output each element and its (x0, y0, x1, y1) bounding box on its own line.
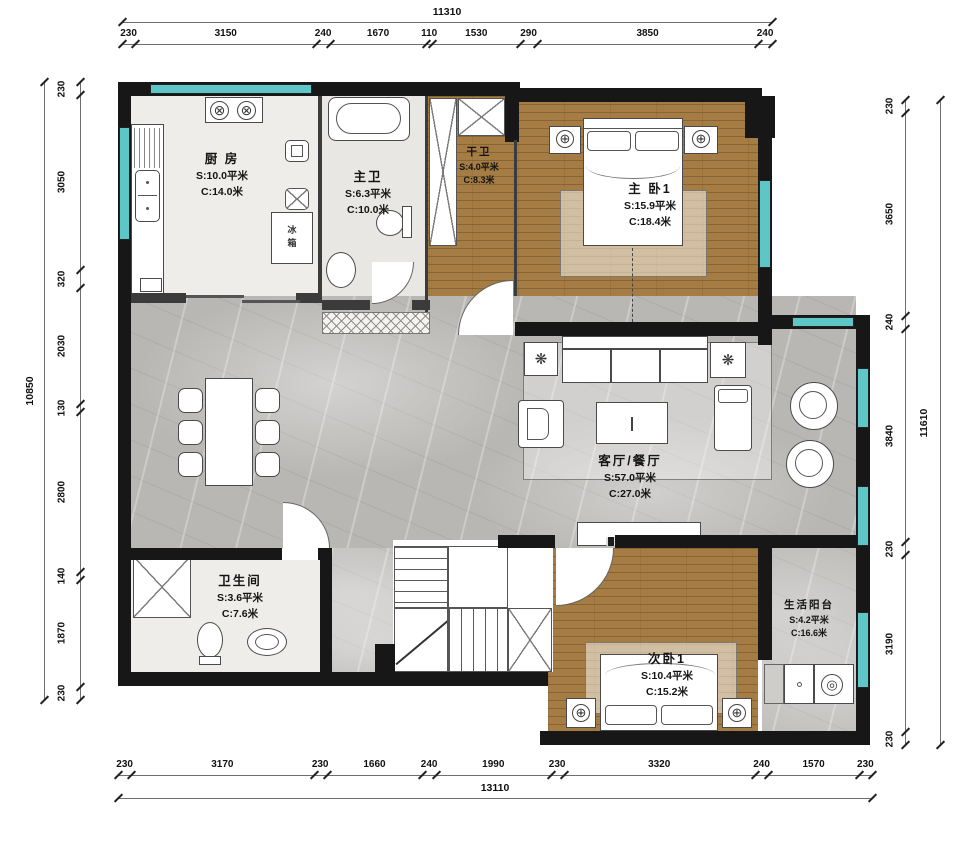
room-area: S:10.0平米 (172, 169, 272, 185)
room-perimeter: C:14.0米 (172, 185, 272, 201)
living-right-window-2 (857, 486, 869, 546)
dim-segment-label: 3190 (885, 632, 896, 654)
room-label-master-bath: 主卫 S:6.3平米 C:10.0米 (328, 168, 408, 218)
leisure-chair-seat (795, 449, 823, 477)
dim-segment-label: 3320 (648, 759, 670, 770)
dim-segment-label: 1660 (363, 759, 385, 770)
bathroom-right-wall (320, 548, 332, 672)
stairs-diagonal (394, 608, 448, 672)
dim-segment-label: 240 (421, 759, 438, 770)
dim-segment-label: 320 (57, 271, 68, 288)
room-perimeter: C:16.6米 (766, 627, 852, 641)
lamp-icon: ⊕ (572, 704, 590, 722)
dim-segment-label: 230 (57, 80, 68, 97)
dim-segment-label: 3050 (57, 171, 68, 193)
chaise-pillow (718, 389, 748, 403)
kitchen-sliding-door-2 (242, 300, 300, 303)
dim-tick (868, 793, 877, 802)
leisure-chair-2 (786, 440, 834, 488)
dim-segment-label: 1670 (367, 28, 389, 39)
kitchen-left-window (119, 127, 130, 240)
room-perimeter: C:8.3米 (448, 174, 510, 188)
dining-chair (178, 420, 203, 445)
dim-segment-label: 230 (549, 759, 566, 770)
dining-table (205, 378, 253, 486)
sofa-back (562, 336, 708, 349)
lamp-icon: ⊕ (728, 704, 746, 722)
masterbath-bottom-wall-a (322, 300, 370, 310)
kitchen-top-window (150, 84, 312, 94)
dining-chair (255, 452, 280, 477)
stairs-flight-lower (448, 608, 508, 672)
floor-plan: ⊗ ⊗ 冰箱 ⊕ ⊕ ❋ ❋ (0, 0, 979, 851)
bottom-wall-stairs (375, 672, 548, 686)
fridge-label: 冰箱 (286, 225, 299, 251)
master-bedroom-bottom-wall (515, 322, 772, 336)
bottom-wall-left (118, 672, 380, 686)
room-perimeter: C:18.4米 (595, 215, 705, 231)
dim-segment-label: 1570 (802, 759, 824, 770)
dim-segment-label: 230 (885, 98, 896, 115)
dining-chair (178, 388, 203, 413)
master-bedroom-window (759, 180, 771, 268)
room-perimeter: C:10.0米 (328, 203, 408, 219)
dim-segment-label: 240 (315, 28, 332, 39)
dim-segment-label: 230 (116, 759, 133, 770)
dim-segment-label: 230 (885, 730, 896, 747)
room-label-second-bedroom: 次卧1 S:10.4平米 C:15.2米 (612, 650, 722, 700)
dim-segment-label: 240 (753, 759, 770, 770)
entry-hatch-floor (322, 312, 430, 334)
dim-segment-label: 240 (885, 314, 896, 331)
leisure-chair-1 (790, 382, 838, 430)
plant-icon: ❋ (722, 351, 735, 369)
coffee-table (596, 402, 668, 444)
dim-total-line (122, 22, 772, 23)
room-label-kitchen: 厨 房 S:10.0平米 C:14.0米 (172, 150, 272, 200)
dim-segment-label: 2030 (57, 335, 68, 357)
dim-segment-label: 110 (421, 28, 437, 39)
kitchen-sliding-door (186, 295, 244, 298)
room-name: 次卧1 (612, 650, 722, 669)
room-area: S:15.9平米 (595, 199, 705, 215)
dim-segment-label: 3170 (211, 759, 233, 770)
room-name: 客厅/餐厅 (560, 452, 700, 471)
room-area: S:4.0平米 (448, 161, 510, 175)
toilet-bathroom (197, 622, 223, 658)
room-area: S:3.6平米 (190, 591, 290, 607)
dim-tick (936, 740, 945, 749)
room-area: S:4.2平米 (766, 614, 852, 628)
dim-segment-label: 2800 (57, 481, 68, 503)
living-bedroom2-wall-a (498, 535, 555, 548)
leisure-chair-seat (799, 391, 827, 419)
living-right-window-1 (857, 368, 869, 428)
room-area: S:6.3平米 (328, 187, 408, 203)
room-name: 干卫 (448, 145, 510, 161)
dim-segment-line (80, 82, 81, 700)
kitchen-appliance-1 (285, 140, 309, 162)
drainboard (134, 128, 161, 168)
balcony-right-window (857, 612, 869, 688)
pillow (635, 131, 679, 151)
kitchen-appliance-2 (285, 188, 309, 210)
dim-total-label: 11610 (918, 408, 930, 437)
stairs-direction-line (395, 615, 448, 665)
room-name: 主卫 (328, 168, 408, 187)
masterbath-bottom-wall-b (412, 300, 430, 310)
gas-stove: ⊗ ⊗ (205, 97, 263, 123)
dim-total-label: 10850 (24, 376, 36, 405)
dim-segment-label: 290 (520, 28, 537, 39)
dim-segment-line (118, 775, 872, 776)
bed-centerline (632, 248, 633, 322)
bathtub (328, 97, 410, 141)
dim-segment-label: 1530 (465, 28, 487, 39)
side-table-right: ❋ (710, 342, 746, 378)
kitchen-sink (135, 170, 160, 222)
dim-tick (40, 695, 49, 704)
sink-drain-dot (146, 181, 149, 184)
room-label-bathroom: 卫生间 S:3.6平米 C:7.6米 (190, 572, 290, 622)
sofa-seat-2 (611, 349, 660, 383)
dim-segment-label: 140 (57, 567, 68, 584)
plant-icon: ❋ (535, 350, 548, 368)
appliance-inner (291, 145, 303, 157)
armchair (518, 400, 564, 448)
dim-tick (768, 17, 777, 26)
dim-segment-label: 3850 (636, 28, 658, 39)
dim-segment-label: 230 (57, 685, 68, 702)
room-name: 厨 房 (172, 150, 272, 169)
dim-total-label: 11310 (433, 6, 462, 18)
stairs-landing (448, 546, 508, 608)
dim-total-line (44, 82, 45, 700)
dim-segment-label: 3150 (215, 28, 237, 39)
dim-total-label: 13110 (481, 782, 510, 794)
room-label-dry-bath: 干卫 S:4.0平米 C:8.3米 (448, 145, 510, 188)
coffee-table-mark (631, 417, 633, 431)
washing-machine: ◎ (814, 664, 854, 704)
headboard (584, 119, 682, 129)
lamp-icon: ⊕ (556, 130, 574, 148)
burner-icon: ⊗ (237, 101, 256, 120)
dim-segment-label: 230 (312, 759, 329, 770)
room-label-master-bedroom: 主 卧1 S:15.9平米 C:18.4米 (595, 180, 705, 230)
kitchen-bottom-wall-a (131, 293, 186, 303)
drybath-bedroom-wall-top (505, 96, 519, 142)
top-wall-bedroom (508, 88, 762, 102)
burner-icon: ⊗ (210, 101, 229, 120)
dim-segment-label: 1870 (57, 622, 68, 644)
dim-segment-label: 3650 (885, 203, 896, 225)
lamp-icon: ⊕ (692, 130, 710, 148)
living-bedroom2-wall-b (615, 535, 870, 548)
dim-segment-label: 230 (120, 28, 137, 39)
bathtub-inner (336, 103, 401, 134)
kitchen-masterbath-wall (318, 96, 322, 296)
toilet-bathroom-tank (199, 656, 221, 665)
sofa-seat-3 (660, 349, 708, 383)
dim-segment-label: 1990 (482, 759, 504, 770)
dim-total-line (118, 798, 872, 799)
shaft-box (508, 608, 552, 672)
dim-total-line (940, 100, 941, 745)
balcony-sink (784, 664, 814, 704)
room-perimeter: C:7.6米 (190, 607, 290, 623)
dim-segment-line (905, 100, 906, 745)
dim-tick (76, 695, 85, 704)
sink-bathroom (247, 628, 287, 656)
sofa-seat-1 (562, 349, 611, 383)
dining-chair (255, 388, 280, 413)
fridge: 冰箱 (271, 212, 313, 264)
armchair-cushion (527, 408, 549, 440)
sink-inner (255, 634, 279, 650)
dim-segment-label: 3840 (885, 424, 896, 446)
dim-tick (901, 740, 910, 749)
room-name: 主 卧1 (595, 180, 705, 199)
sink-divider (138, 195, 157, 196)
balcony-counter (764, 664, 784, 704)
dim-segment-label: 230 (857, 759, 874, 770)
dim-segment-label: 130 (57, 400, 68, 417)
washer-door-icon: ◎ (821, 674, 843, 696)
dining-chair (178, 452, 203, 477)
stair-step-wall (375, 644, 395, 686)
drybath-bedroom-wall (514, 140, 517, 296)
pillow (587, 131, 631, 151)
drain-dot (797, 682, 802, 687)
sink-drain-dot (146, 207, 149, 210)
bottom-wall-right (540, 731, 870, 745)
dim-segment-label: 240 (757, 28, 774, 39)
sink-master (326, 252, 356, 288)
room-perimeter: C:27.0米 (560, 487, 700, 503)
room-area: S:10.4平米 (612, 669, 722, 685)
chaise (714, 385, 752, 451)
room-name: 生活阳台 (766, 598, 852, 614)
room-area: S:57.0平米 (560, 471, 700, 487)
side-table-left: ❋ (524, 342, 558, 376)
bathroom-top-wall-a (118, 548, 282, 560)
pillow (661, 705, 713, 725)
pillow (605, 705, 657, 725)
dim-segment-label: 230 (885, 540, 896, 557)
room-perimeter: C:15.2米 (612, 685, 722, 701)
stairs-flight-upper (394, 546, 448, 608)
shower-box (133, 556, 191, 618)
dim-segment-line (122, 44, 772, 45)
closet-cabinet-top (458, 98, 505, 136)
blanket-arc (586, 153, 680, 179)
dim-tick (768, 39, 777, 48)
room-label-balcony: 生活阳台 S:4.2平米 C:16.6米 (766, 598, 852, 641)
floor-drain-box (140, 278, 162, 292)
dining-chair (255, 420, 280, 445)
room-name: 卫生间 (190, 572, 290, 591)
room-label-living-dining: 客厅/餐厅 S:57.0平米 C:27.0米 (560, 452, 700, 502)
right-step-window (792, 317, 854, 327)
masterbath-drybath-wall (425, 96, 428, 312)
dim-tick (868, 770, 877, 779)
